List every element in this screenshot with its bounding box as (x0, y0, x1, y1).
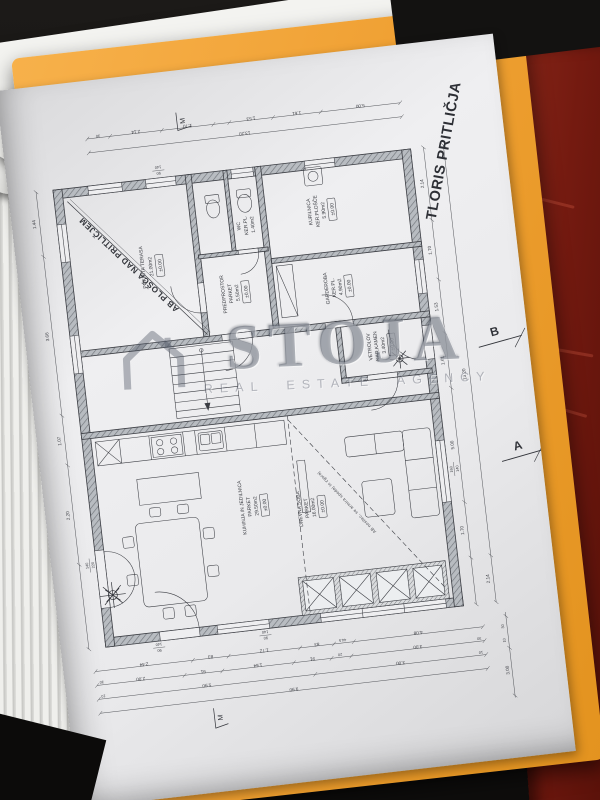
dimension-label: 2.14 (419, 179, 425, 189)
svg-text:140: 140 (155, 165, 162, 170)
svg-text:140: 140 (85, 562, 90, 569)
dimension-label: 2.14 (485, 574, 491, 584)
svg-text:A: A (512, 438, 524, 454)
room-label-predprostor: PREDPROSTOR PARKET 5.50m2 ±0.00 (219, 272, 252, 314)
svg-text:4.90m2: 4.90m2 (337, 278, 345, 295)
room-label-dnevna-soba: DNEVNA SOBA PARKET 16.00m2 ±0.00 (295, 488, 328, 528)
dimension-label: 30 (477, 636, 482, 640)
photo-of-floor-plan: V KONČNIKKONČNIK O KODE (0, 0, 600, 800)
room-label-kuhinja: KUHINJA IN JEDILNICA PARKET 29.50m2 ±0.0… (236, 477, 271, 535)
dimension-label: 5.00 (355, 103, 365, 109)
svg-text:1.40m2: 1.40m2 (249, 216, 257, 233)
dimension-label: 3.00 (413, 644, 423, 650)
svg-text:140: 140 (455, 465, 460, 472)
dimension-label: 30 (96, 133, 101, 137)
coffee-table (361, 478, 395, 517)
dimension-label: 30 (99, 680, 104, 684)
svg-text:29.50m2: 29.50m2 (252, 496, 260, 516)
dimension-label: 1.44 (31, 219, 37, 229)
dimension-label: 3.00 (505, 665, 511, 675)
dimension-label: 83 (207, 654, 213, 660)
svg-text:140: 140 (262, 629, 269, 634)
svg-text:M: M (179, 117, 187, 124)
stove-icon (151, 434, 183, 457)
svg-text:90: 90 (156, 171, 161, 175)
dimension-label: 1.70 (427, 245, 433, 255)
window-size-mark: 90 140 (259, 629, 272, 640)
sofa (402, 428, 440, 519)
svg-text:90: 90 (157, 648, 162, 652)
dimension-label: 91 (309, 656, 315, 662)
dimension-label: 83 (314, 642, 320, 648)
window-size-mark: 90 140 (153, 641, 166, 652)
svg-text:21.00m2: 21.00m2 (147, 256, 155, 276)
dimension-label: 1.61 (292, 110, 302, 116)
dimension-label: 5.90 (202, 682, 212, 688)
room-label-wc: WC KER.PL. 1.40m2 (235, 215, 257, 236)
dimension-label: 5.00 (449, 440, 455, 450)
dimension-label: 1.07 (56, 436, 62, 446)
dimension-label: 20 (338, 652, 343, 656)
dimension-label: 4.08 (413, 630, 423, 636)
section-marker-b: B (476, 320, 527, 351)
room-label-vetrolov: VETROLOV NAR.KAMEN 3.40m2 ±0.00 (365, 329, 397, 362)
svg-text:M: M (217, 714, 225, 721)
dimension-label: 13.20 (461, 368, 467, 380)
dimension-label: 13.20 (238, 130, 250, 136)
dimension-label: 9.90 (289, 686, 299, 692)
dimension-label: 10 (479, 650, 484, 654)
dimension-label: 2.00 (136, 676, 146, 682)
dimension-label: 1.61 (440, 355, 446, 365)
dimension-label: 44.5 (339, 638, 347, 643)
dimension-label: 10 (502, 638, 506, 643)
dimension-label: 1.70 (459, 525, 465, 535)
svg-text:160: 160 (449, 466, 454, 473)
dimension-label: 2.44 (139, 661, 149, 667)
dimension-label: 2.14 (131, 129, 141, 135)
kitchen-island (137, 472, 202, 505)
staircase (169, 342, 241, 419)
svg-text:POKRITA TERASA: POKRITA TERASA (138, 245, 149, 289)
window-size-mark: 90 140 (152, 164, 165, 175)
dimension-label: 91 (200, 669, 206, 675)
svg-text:5.50m2: 5.50m2 (234, 284, 242, 301)
section-marker-a: A (500, 435, 546, 465)
dimension-label: 30 (501, 624, 505, 629)
floor-plan-page: AB PLOŠČA NAD PRITLIČJEM AB nosilec, se … (0, 34, 576, 800)
floor-plan-drawing: AB PLOŠČA NAD PRITLIČJEM AB nosilec, se … (0, 34, 576, 800)
dimension-label: 2.20 (65, 511, 71, 521)
svg-text:90: 90 (263, 636, 268, 640)
svg-text:140: 140 (155, 642, 162, 647)
dimension-label: 1.64 (253, 662, 263, 668)
dimension-label: 1.53 (246, 116, 256, 122)
room-label-garderoba: GARDEROBA KER.PL. 4.90m2 ±0.00 (322, 269, 355, 305)
room-label-kurilnica: KURILNICA KER.PLOŠČE 5.90m2 ±0.00 (305, 192, 338, 228)
window-size-mark: 140 220 (85, 558, 97, 573)
slab-note-text: AB PLOŠČA NAD PRITLIČJEM (76, 216, 180, 316)
dimension-label: 3.00 (395, 660, 405, 666)
svg-text:220: 220 (91, 562, 96, 569)
window-size-mark: 160 140 (449, 461, 461, 476)
svg-text:WC: WC (236, 221, 243, 230)
furniture (67, 157, 448, 625)
svg-text:3.40m2: 3.40m2 (380, 336, 388, 353)
dimension-label: 10 (101, 694, 106, 698)
dimension-label: 3.66 (44, 332, 50, 342)
svg-text:B: B (488, 323, 500, 339)
dimension-label: 1.72 (259, 648, 269, 654)
svg-text:5.90m2: 5.90m2 (320, 201, 328, 218)
dimension-label: 1.53 (433, 302, 439, 312)
svg-text:16.00m2: 16.00m2 (310, 497, 318, 517)
drawing-title: TLORIS PRITLIČJA (422, 80, 465, 221)
